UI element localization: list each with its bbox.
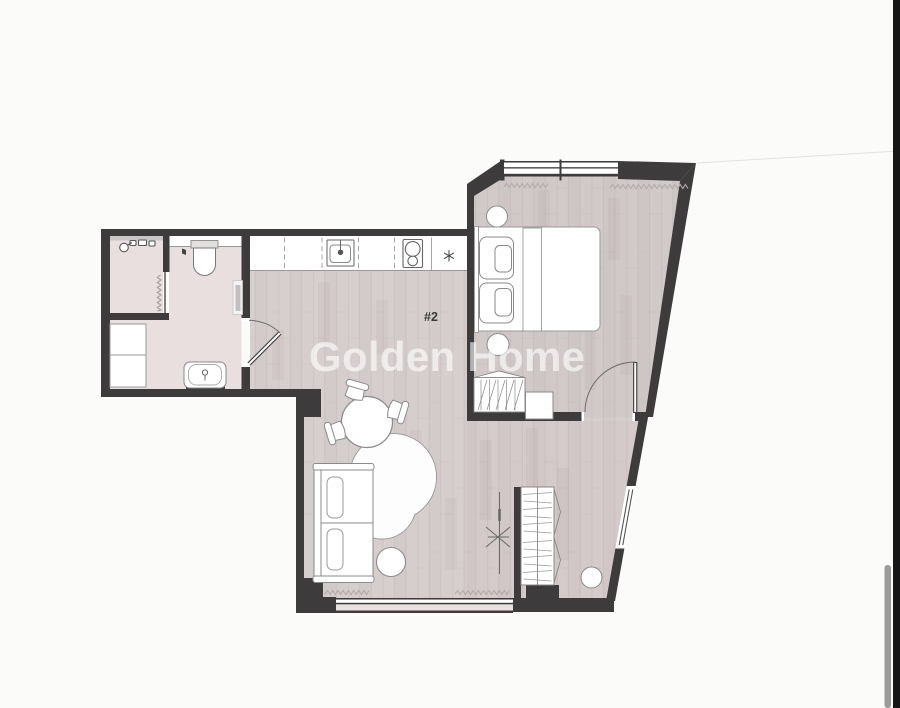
svg-text:Golden Home: Golden Home <box>309 333 585 380</box>
svg-text:#2: #2 <box>424 310 438 324</box>
